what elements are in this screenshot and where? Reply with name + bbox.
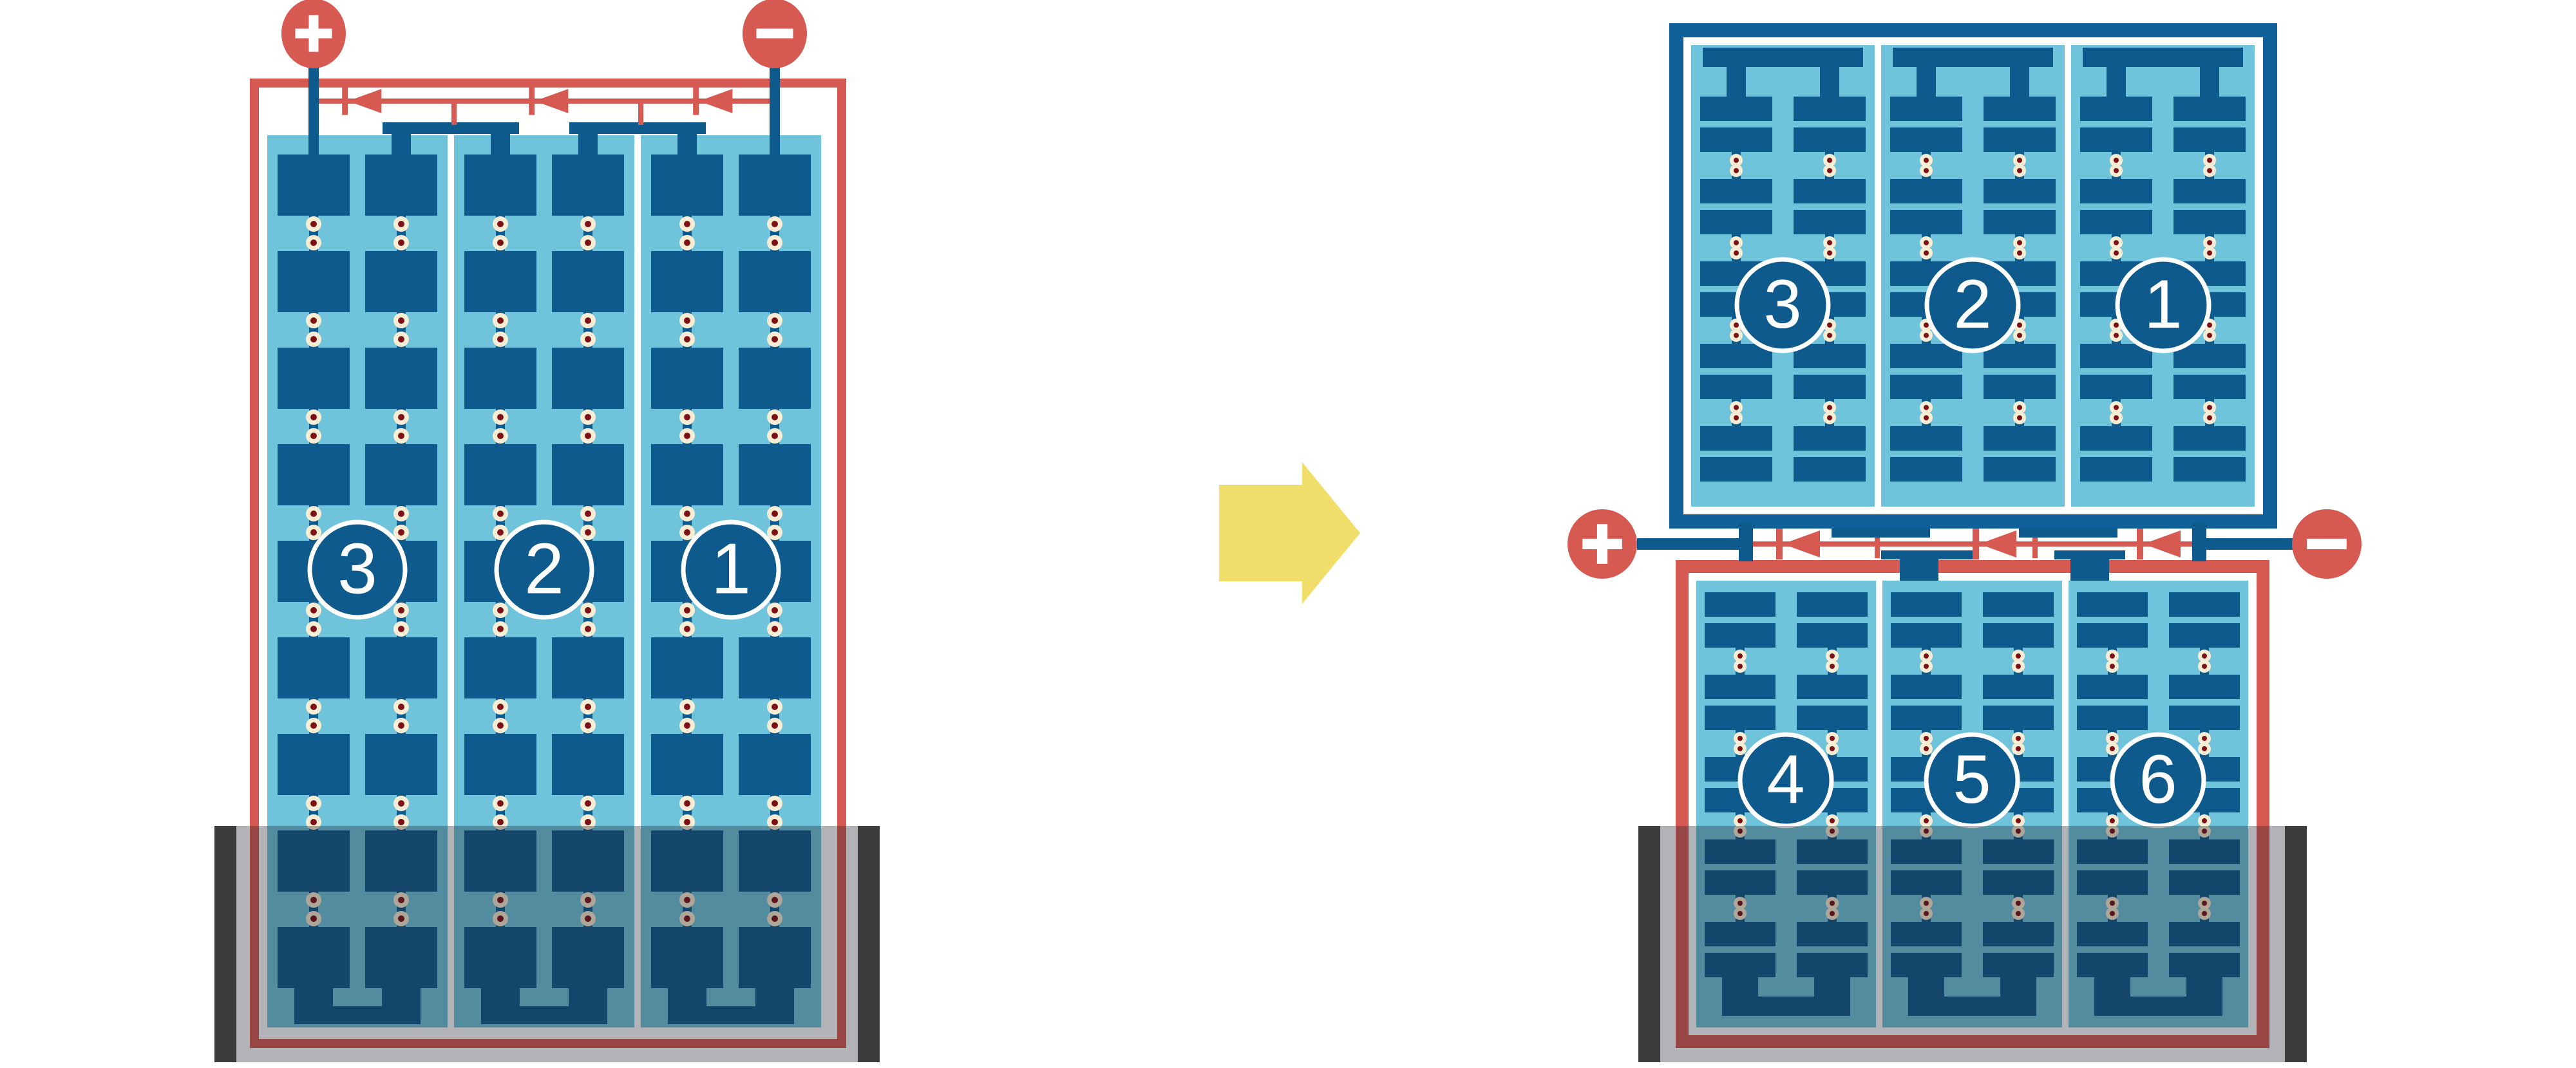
solder-dot-core — [1734, 415, 1739, 420]
solar-cell — [464, 637, 536, 698]
solder-dot-core — [398, 414, 404, 420]
solar-half-cell — [2173, 426, 2246, 451]
solar-half-cell — [2173, 375, 2246, 399]
junction-vertical-bus — [1739, 523, 1753, 561]
solder-dot-core — [2207, 240, 2212, 245]
solar-half-cell — [1984, 375, 2056, 399]
solder-dot-core — [2114, 250, 2119, 256]
solar-cell — [464, 444, 536, 505]
junction-tab-upper — [2019, 529, 2117, 538]
solder-dot-core — [2207, 323, 2212, 328]
solder-dot-core — [398, 433, 404, 439]
solder-dot-core — [310, 336, 317, 342]
solder-dot-core — [772, 722, 778, 729]
solder-dot-core — [585, 433, 591, 439]
solar-cell — [739, 734, 811, 795]
solar-cell — [651, 348, 723, 409]
diode-cathode-bar — [342, 87, 348, 115]
solder-dot-core — [1924, 818, 1929, 823]
solar-half-cell — [1891, 706, 1962, 730]
string-number: 1 — [2144, 266, 2182, 342]
solar-cell — [365, 251, 437, 312]
solder-dot-core — [772, 433, 778, 439]
solar-cell — [278, 251, 350, 312]
shade-overlay — [1638, 826, 2307, 1062]
solar-half-cell — [1705, 675, 1776, 699]
solar-cell — [552, 348, 624, 409]
solder-dot-core — [398, 722, 404, 729]
solar-half-cell — [2080, 375, 2152, 399]
shade-edge-bar — [1638, 826, 1660, 1062]
solar-half-cell — [1794, 457, 1866, 482]
solder-dot-core — [310, 800, 317, 807]
right-top-module: 321 — [1676, 30, 2270, 521]
diode-cathode-bar — [529, 87, 535, 115]
solder-dot-core — [497, 511, 504, 517]
solder-dot-core — [585, 239, 591, 246]
string-number: 5 — [1953, 741, 1991, 818]
solar-half-cell — [1700, 179, 1772, 203]
string-label: 3 — [1737, 259, 1828, 351]
shade-edge-bar — [214, 826, 236, 1062]
solder-dot-core — [2202, 746, 2207, 751]
solder-dot-core — [684, 511, 690, 517]
string-u-connector-bar — [1703, 48, 1863, 67]
solder-dot-core — [585, 704, 591, 710]
solar-half-cell — [1794, 179, 1866, 203]
solar-half-cell — [2077, 675, 2148, 699]
string-number: 3 — [337, 529, 377, 608]
solder-dot-core — [2016, 653, 2021, 659]
solder-dot-core — [2017, 240, 2022, 245]
solar-half-cell — [1983, 592, 2054, 617]
diode-tap-stub — [638, 103, 643, 125]
solar-half-cell — [2173, 127, 2246, 152]
solder-dot-core — [398, 239, 404, 246]
solar-cell — [739, 155, 811, 216]
solder-dot-core — [684, 607, 690, 614]
solder-dot-core — [684, 529, 690, 536]
solder-dot-core — [2114, 333, 2119, 338]
string-label: 5 — [1926, 735, 2018, 826]
solar-half-cell — [2080, 426, 2152, 451]
solder-dot-core — [1924, 415, 1929, 420]
solder-dot-core — [1738, 736, 1743, 741]
string-number: 6 — [2139, 741, 2177, 818]
solar-half-cell — [2077, 706, 2148, 730]
solder-dot-core — [310, 239, 317, 246]
solder-dot-core — [2114, 168, 2119, 173]
solder-dot-core — [772, 221, 778, 227]
solder-dot-core — [2202, 818, 2207, 823]
diagram-canvas: 321321456 — [0, 0, 2576, 1068]
terminal-negative — [2292, 509, 2362, 579]
junction-tab-lower-leg — [2070, 557, 2109, 581]
solar-half-cell — [1700, 210, 1772, 234]
solder-dot-core — [1924, 158, 1929, 163]
shade-edge-bar — [858, 826, 880, 1062]
string-bridge-bar — [569, 122, 706, 134]
bypass-diode-icon — [2137, 529, 2181, 559]
solar-half-cell — [2169, 675, 2240, 699]
solder-dot-core — [585, 607, 591, 614]
solder-dot-core — [1827, 333, 1832, 338]
solder-dot-core — [772, 336, 778, 342]
solder-dot-core — [2017, 168, 2022, 173]
solder-dot-core — [772, 626, 778, 632]
string-u-connector-leg — [1917, 67, 1936, 98]
solder-dot-core — [2110, 818, 2115, 823]
solder-dot-core — [1924, 664, 1929, 669]
solder-dot-core — [772, 800, 778, 807]
string-u-connector-leg — [1820, 67, 1839, 98]
solar-cell — [278, 444, 350, 505]
solder-dot-core — [585, 800, 591, 807]
solder-dot-core — [1734, 250, 1739, 256]
solar-cell — [278, 637, 350, 698]
solar-half-cell — [1890, 97, 1962, 121]
solder-dot-core — [684, 800, 690, 807]
solder-dot-core — [2114, 415, 2119, 420]
solar-cell — [739, 637, 811, 698]
string-number: 3 — [1763, 266, 1801, 342]
solar-half-cell — [1700, 97, 1772, 121]
shade-edge-bar — [2285, 826, 2307, 1062]
string-number: 2 — [1953, 266, 1991, 342]
solar-cell — [278, 348, 350, 409]
solder-dot-core — [1924, 653, 1929, 659]
string-label: 2 — [497, 522, 592, 617]
solder-dot-core — [772, 529, 778, 536]
solar-half-cell — [1794, 375, 1866, 399]
solder-dot-core — [2202, 736, 2207, 741]
solder-dot-core — [1924, 250, 1929, 256]
bypass-diode-row — [314, 87, 777, 125]
solder-dot-core — [398, 221, 404, 227]
solar-half-cell — [2080, 97, 2152, 121]
solder-dot-core — [1738, 664, 1743, 669]
solar-cell — [739, 444, 811, 505]
terminal-positive — [281, 0, 346, 68]
solder-dot-core — [772, 704, 778, 710]
solder-dot-core — [1738, 818, 1743, 823]
string-u-connector-leg — [1727, 67, 1746, 98]
solder-dot-core — [684, 239, 690, 246]
solder-dot-core — [1738, 746, 1743, 751]
solar-half-cell — [1797, 706, 1868, 730]
solar-half-cell — [1890, 457, 1962, 482]
string-bridge-leg — [491, 134, 510, 156]
solder-dot-core — [2017, 405, 2022, 410]
solder-dot-core — [2207, 168, 2212, 173]
solder-dot-core — [2114, 405, 2119, 410]
string-u-connector-leg — [2107, 67, 2126, 98]
solar-cell — [739, 348, 811, 409]
solder-dot-core — [585, 317, 591, 324]
solar-half-cell — [1984, 457, 2056, 482]
solder-dot-core — [310, 221, 317, 227]
half-cell-module-shading-diagram: 321321456 — [0, 0, 2576, 1068]
solder-dot-core — [2016, 818, 2021, 823]
solder-dot-core — [1734, 405, 1739, 410]
solder-dot-core — [1830, 746, 1835, 751]
shade-region — [1638, 826, 2307, 1062]
solar-cell — [365, 444, 437, 505]
solder-dot-core — [585, 511, 591, 517]
solder-dot-core — [398, 317, 404, 324]
solder-dot-core — [2017, 333, 2022, 338]
solder-dot-core — [1830, 664, 1835, 669]
solar-cell — [552, 251, 624, 312]
solder-dot-core — [585, 626, 591, 632]
solar-half-cell — [2173, 210, 2246, 234]
solder-dot-core — [2207, 158, 2212, 163]
solar-half-cell — [1890, 210, 1962, 234]
diode-triangle — [1783, 530, 1820, 557]
solder-dot-core — [684, 414, 690, 420]
solar-cell — [464, 251, 536, 312]
solder-dot-core — [497, 704, 504, 710]
solder-dot-core — [310, 704, 317, 710]
string-bridge-leg — [392, 134, 411, 156]
solder-dot-core — [2110, 746, 2115, 751]
solder-dot-core — [684, 336, 690, 342]
solder-dot-core — [310, 529, 317, 536]
solder-dot-core — [497, 414, 504, 420]
solder-dot-core — [497, 626, 504, 632]
solar-half-cell — [1705, 623, 1776, 648]
solar-half-cell — [2169, 623, 2240, 648]
solar-half-cell — [1797, 592, 1868, 617]
diode-triangle — [2143, 530, 2181, 557]
solar-half-cell — [2077, 592, 2148, 617]
solder-dot-core — [2202, 653, 2207, 659]
solar-half-cell — [2173, 179, 2246, 203]
solder-dot-core — [772, 511, 778, 517]
solder-dot-core — [2017, 323, 2022, 328]
solder-dot-core — [2202, 664, 2207, 669]
string-number: 2 — [524, 529, 564, 608]
solder-dot-core — [1734, 323, 1739, 328]
solder-dot-core — [2016, 664, 2021, 669]
solar-half-cell — [1984, 179, 2056, 203]
string-u-connector-bar — [2083, 48, 2243, 67]
solder-dot-core — [1827, 405, 1832, 410]
solder-dot-core — [310, 511, 317, 517]
solar-cell — [552, 155, 624, 216]
solder-dot-core — [684, 433, 690, 439]
minus-icon — [2307, 539, 2347, 549]
solder-dot-core — [1924, 240, 1929, 245]
solder-dot-core — [585, 221, 591, 227]
solder-dot-core — [772, 414, 778, 420]
solar-half-cell — [1983, 623, 2054, 648]
solar-cell — [365, 348, 437, 409]
terminal-wire — [2205, 538, 2293, 550]
bypass-diode-icon — [342, 87, 381, 115]
solder-dot-core — [585, 722, 591, 729]
diode-triangle — [1979, 530, 2016, 557]
solder-dot-core — [1924, 736, 1929, 741]
solder-dot-core — [2114, 323, 2119, 328]
terminal-negative — [743, 0, 807, 68]
solar-half-cell — [2077, 623, 2148, 648]
solder-dot-core — [310, 626, 317, 632]
solder-dot-core — [684, 819, 690, 825]
bypass-diode-icon — [693, 87, 732, 115]
solar-cell — [651, 251, 723, 312]
solder-dot-core — [310, 819, 317, 825]
solar-cell — [278, 155, 350, 216]
string-label: 4 — [1740, 735, 1832, 826]
diode-triangle — [699, 89, 732, 113]
solder-dot-core — [1827, 158, 1832, 163]
diode-tap-stub — [451, 103, 457, 125]
solder-dot-core — [398, 704, 404, 710]
string-label: 6 — [2112, 735, 2204, 826]
solder-dot-core — [2207, 405, 2212, 410]
string-label: 1 — [2117, 259, 2209, 351]
junction-tab-upper — [1832, 529, 1930, 538]
solar-half-cell — [2169, 706, 2240, 730]
solder-dot-core — [497, 221, 504, 227]
string-label: 1 — [683, 522, 779, 617]
solder-dot-core — [1734, 333, 1739, 338]
solder-dot-core — [2207, 250, 2212, 256]
solar-half-cell — [1794, 127, 1866, 152]
solar-cell — [365, 637, 437, 698]
solar-cell — [365, 155, 437, 216]
solder-dot-core — [1734, 158, 1739, 163]
string-bridge-leg — [677, 134, 697, 156]
solar-half-cell — [1794, 210, 1866, 234]
solder-dot-core — [2207, 415, 2212, 420]
solar-half-cell — [1700, 426, 1772, 451]
solder-dot-core — [1827, 250, 1832, 256]
plus-icon — [309, 15, 319, 52]
solder-dot-core — [684, 722, 690, 729]
solar-half-cell — [1705, 706, 1776, 730]
solder-dot-core — [684, 626, 690, 632]
solar-half-cell — [1984, 97, 2056, 121]
solar-half-cell — [2080, 127, 2152, 152]
solder-dot-core — [310, 607, 317, 614]
solar-cell — [278, 734, 350, 795]
solder-dot-core — [585, 529, 591, 536]
solder-dot-core — [398, 819, 404, 825]
solder-dot-core — [2017, 158, 2022, 163]
solar-cell — [464, 734, 536, 795]
string-u-connector-leg — [2200, 67, 2219, 98]
solder-dot-core — [2017, 250, 2022, 256]
solar-half-cell — [1983, 706, 2054, 730]
string-u-connector-bar — [1893, 48, 2053, 67]
solar-half-cell — [1794, 97, 1866, 121]
solar-cell — [464, 155, 536, 216]
solar-half-cell — [1797, 623, 1868, 648]
solder-dot-core — [398, 800, 404, 807]
solder-dot-core — [2017, 415, 2022, 420]
solar-half-cell — [1700, 127, 1772, 152]
solder-dot-core — [1924, 405, 1929, 410]
minus-icon — [757, 29, 793, 39]
solar-half-cell — [2173, 457, 2246, 482]
solar-half-cell — [2173, 97, 2246, 121]
solder-dot-core — [684, 704, 690, 710]
solar-cell — [651, 155, 723, 216]
solar-half-cell — [2080, 210, 2152, 234]
diode-cathode-bar — [693, 87, 699, 115]
solar-half-cell — [2169, 592, 2240, 617]
solder-dot-core — [772, 819, 778, 825]
solder-dot-core — [497, 607, 504, 614]
diode-cathode-bar — [1973, 529, 1979, 559]
solder-dot-core — [1738, 653, 1743, 659]
diode-cathode-bar — [2137, 529, 2143, 559]
solder-dot-core — [1830, 653, 1835, 659]
solar-cell — [651, 444, 723, 505]
solar-half-cell — [1890, 375, 1962, 399]
diode-triangle — [348, 89, 381, 113]
solder-dot-core — [497, 800, 504, 807]
solder-dot-core — [1734, 168, 1739, 173]
solder-dot-core — [310, 414, 317, 420]
solar-cell — [651, 734, 723, 795]
solder-dot-core — [585, 819, 591, 825]
solder-dot-core — [497, 529, 504, 536]
solder-dot-core — [310, 433, 317, 439]
solder-dot-core — [585, 336, 591, 342]
solar-half-cell — [1891, 623, 1962, 648]
solder-dot-core — [1830, 818, 1835, 823]
solar-cell — [651, 637, 723, 698]
solar-half-cell — [1891, 592, 1962, 617]
solder-dot-core — [1827, 415, 1832, 420]
solder-dot-core — [398, 529, 404, 536]
solder-dot-core — [1827, 168, 1832, 173]
solder-dot-core — [497, 336, 504, 342]
solder-dot-core — [398, 607, 404, 614]
solar-half-cell — [1984, 426, 2056, 451]
solar-half-cell — [1890, 426, 1962, 451]
solar-half-cell — [1700, 457, 1772, 482]
solar-half-cell — [1984, 127, 2056, 152]
solar-half-cell — [1984, 210, 2056, 234]
diode-cathode-bar — [1776, 529, 1783, 559]
solder-dot-core — [684, 317, 690, 324]
solar-half-cell — [1797, 675, 1868, 699]
solar-half-cell — [1890, 127, 1962, 152]
solder-dot-core — [497, 819, 504, 825]
solder-dot-core — [1924, 333, 1929, 338]
solder-dot-core — [2207, 333, 2212, 338]
solder-dot-core — [2110, 736, 2115, 741]
terminal-wire — [1637, 538, 1740, 550]
solder-dot-core — [684, 221, 690, 227]
solder-dot-core — [1830, 736, 1835, 741]
solar-half-cell — [1700, 375, 1772, 399]
shade-overlay — [214, 826, 880, 1062]
solder-dot-core — [2016, 736, 2021, 741]
solar-half-cell — [1705, 592, 1776, 617]
solder-dot-core — [2110, 653, 2115, 659]
solder-dot-core — [2110, 664, 2115, 669]
bypass-diode-icon — [1973, 529, 2016, 559]
string-bridge-leg — [578, 134, 598, 156]
solder-dot-core — [772, 317, 778, 324]
diode-triangle — [535, 89, 568, 113]
solar-cell — [365, 734, 437, 795]
